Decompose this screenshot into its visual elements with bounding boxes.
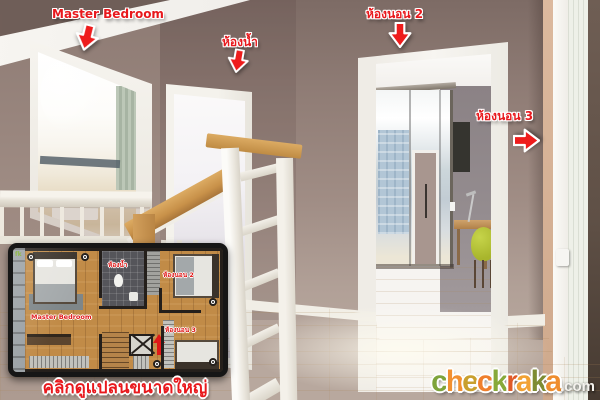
mirror-seam [439,90,441,266]
right-wall-edge [588,0,600,400]
hallway-photo: fk Master Bedroom ห้องน้ำ ห้องนอน 2 ห้อง… [0,0,600,400]
bedroom3-door-frame [553,0,568,400]
wall-shelf [453,122,470,172]
arrow-down-icon [387,22,413,48]
floorplan-caption-link[interactable]: คลิกดูแปลนขนาดใหญ่ [40,374,210,400]
checkraka-logo-suffix: .com [560,378,595,395]
mirror-seam [409,90,411,266]
arrow-down-icon [224,47,252,75]
checkraka-logo-letters: checkraka [431,365,560,398]
mirror-edge [450,90,453,268]
left-railing-top [0,190,152,208]
desk-leg [457,229,460,265]
checkraka-logo: checkraka.com [431,365,595,399]
floorplan-thumbnail[interactable]: fk Master Bedroom ห้องน้ำ ห้องนอน 2 ห้อง… [8,243,228,377]
window-mullion [40,156,120,168]
wardrobe-handle [425,184,427,218]
bedroom3-door [568,0,588,400]
chair-legs [474,260,493,288]
arrow-right-icon [513,127,540,154]
wall-outlet [450,202,455,211]
curtain [116,86,136,190]
wallpaper-reflection [378,130,409,234]
master-bedroom-label: Master Bedroom [52,7,164,21]
light-switch [556,249,569,266]
bedroom3-label: ห้องนอน 3 [476,107,533,126]
plan-gloss [13,248,223,372]
